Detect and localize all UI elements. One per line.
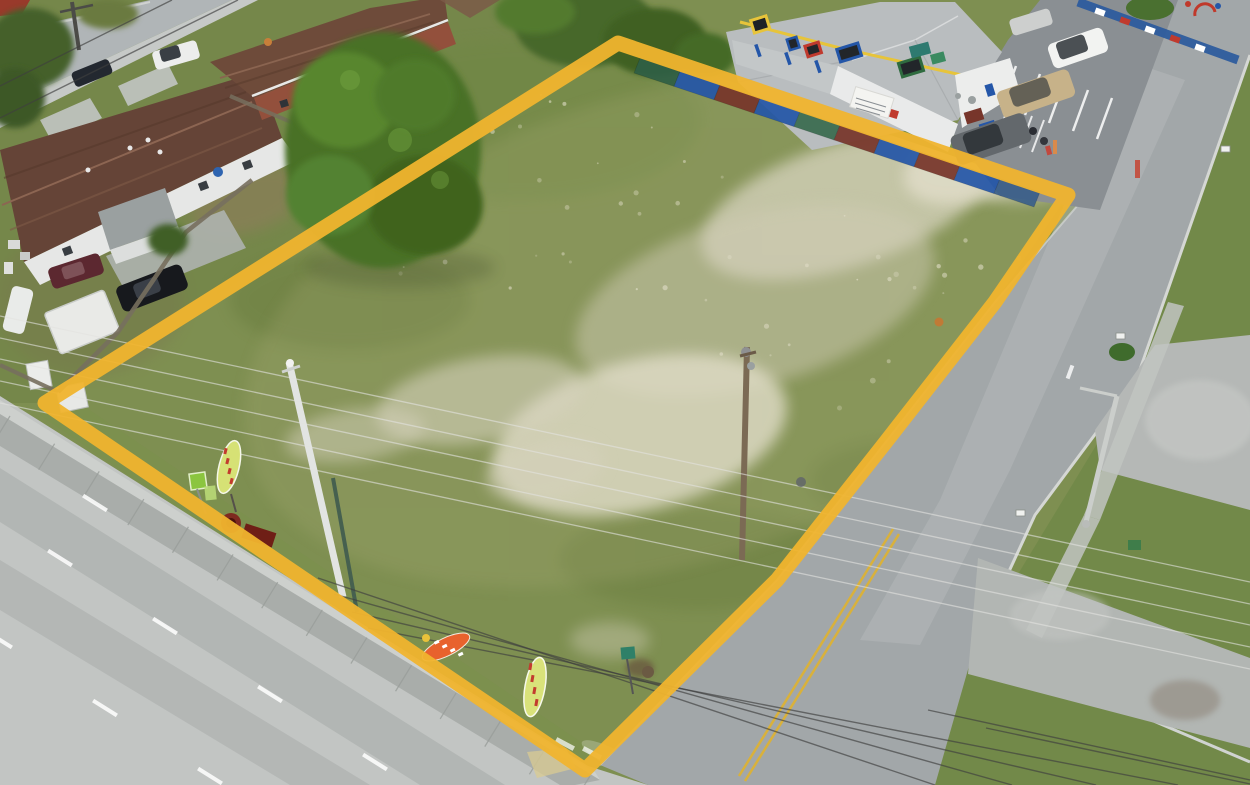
daycare-window-blue-small bbox=[787, 37, 800, 50]
playground-equipment-red-dot bbox=[1185, 1, 1191, 7]
yard-clutter bbox=[8, 240, 20, 249]
grass-speckle bbox=[942, 273, 947, 278]
grass-speckle bbox=[619, 201, 623, 205]
street-sign-green bbox=[189, 472, 207, 490]
daycare-window-red bbox=[805, 42, 822, 57]
fire-hydrant bbox=[935, 318, 944, 327]
grass-speckle bbox=[764, 324, 769, 329]
grass-speckle bbox=[651, 127, 653, 129]
grass-speckle bbox=[887, 359, 891, 363]
grass-speckle bbox=[683, 160, 686, 163]
grass-speckle bbox=[870, 378, 876, 384]
person bbox=[1029, 127, 1037, 135]
roof-vent bbox=[146, 138, 151, 143]
orange-clutter bbox=[264, 38, 272, 46]
grass-speckle bbox=[963, 238, 967, 242]
grass-speckle bbox=[569, 261, 572, 264]
aerial-photo-canvas bbox=[0, 0, 1250, 785]
manhole bbox=[796, 477, 806, 487]
ac-unit bbox=[968, 96, 976, 104]
yard-clutter bbox=[4, 262, 13, 274]
hedge bbox=[148, 224, 188, 256]
grass-speckle bbox=[663, 285, 668, 290]
grass-speckle bbox=[638, 212, 642, 216]
mailbox bbox=[1221, 146, 1230, 152]
grass-speckle bbox=[844, 215, 846, 217]
grass-speckle bbox=[634, 190, 639, 195]
grass-speckle bbox=[728, 255, 732, 259]
grass-speckle bbox=[565, 205, 570, 210]
sand-patch bbox=[570, 622, 650, 658]
grass-speckle bbox=[675, 201, 680, 206]
driveway-mottle bbox=[1145, 380, 1250, 460]
grass-speckle bbox=[788, 343, 791, 346]
grass-speckle bbox=[535, 255, 537, 257]
pole-cap bbox=[286, 359, 294, 367]
grass-speckle bbox=[769, 354, 771, 356]
grass-speckle bbox=[887, 277, 891, 281]
street-light-base bbox=[1082, 520, 1090, 528]
pole-transformer bbox=[747, 362, 755, 370]
playground-equipment-blue bbox=[1215, 3, 1221, 9]
mailbox bbox=[1116, 333, 1125, 339]
utility-box-green bbox=[1128, 540, 1141, 550]
mailbox bbox=[1016, 510, 1025, 516]
bollard-red bbox=[1135, 160, 1140, 178]
grass-speckle bbox=[805, 264, 809, 268]
hedge bbox=[78, 0, 138, 29]
aerial-photo bbox=[0, 0, 1250, 785]
grass-speckle bbox=[978, 264, 983, 269]
grass-speckle bbox=[562, 252, 565, 255]
grass-speckle bbox=[913, 286, 917, 290]
tree-canopy bbox=[375, 59, 455, 131]
grass-speckle bbox=[894, 272, 899, 277]
flag-yellow-tip bbox=[422, 634, 430, 642]
small-sign-teal bbox=[621, 646, 636, 659]
daycare-window-yellow bbox=[751, 16, 770, 33]
blue-barrel bbox=[213, 167, 223, 177]
grass-speckle bbox=[720, 352, 724, 356]
driveway-stain bbox=[1150, 680, 1220, 720]
street-sign-green-small bbox=[204, 485, 216, 500]
roof-vent bbox=[158, 150, 163, 155]
person bbox=[1040, 137, 1048, 145]
grass-speckle bbox=[537, 178, 542, 183]
grass-speckle bbox=[509, 286, 512, 289]
tree-highlight bbox=[431, 171, 449, 189]
ac-unit bbox=[955, 93, 961, 99]
roof-vent bbox=[86, 168, 91, 173]
grass-speckle bbox=[837, 406, 842, 411]
grass-speckle bbox=[636, 288, 638, 290]
grass-speckle bbox=[634, 112, 639, 117]
yard-clutter bbox=[20, 252, 30, 260]
grass-speckle bbox=[876, 255, 881, 260]
roof-vent bbox=[128, 146, 133, 151]
grass-speckle bbox=[942, 292, 944, 294]
grass-speckle bbox=[549, 100, 552, 103]
palm-shrub bbox=[1109, 343, 1135, 361]
grass-speckle bbox=[937, 264, 941, 268]
grass-speckle bbox=[721, 176, 724, 179]
tree-highlight bbox=[388, 128, 412, 152]
grass-speckle bbox=[705, 299, 708, 302]
grass-speckle bbox=[856, 279, 858, 281]
buried-debris bbox=[642, 666, 654, 678]
grass-speckle bbox=[518, 125, 522, 129]
grass-speckle bbox=[562, 102, 566, 106]
grass-speckle bbox=[597, 162, 599, 164]
tree-highlight bbox=[340, 70, 360, 90]
bollard-orange bbox=[1053, 140, 1057, 154]
